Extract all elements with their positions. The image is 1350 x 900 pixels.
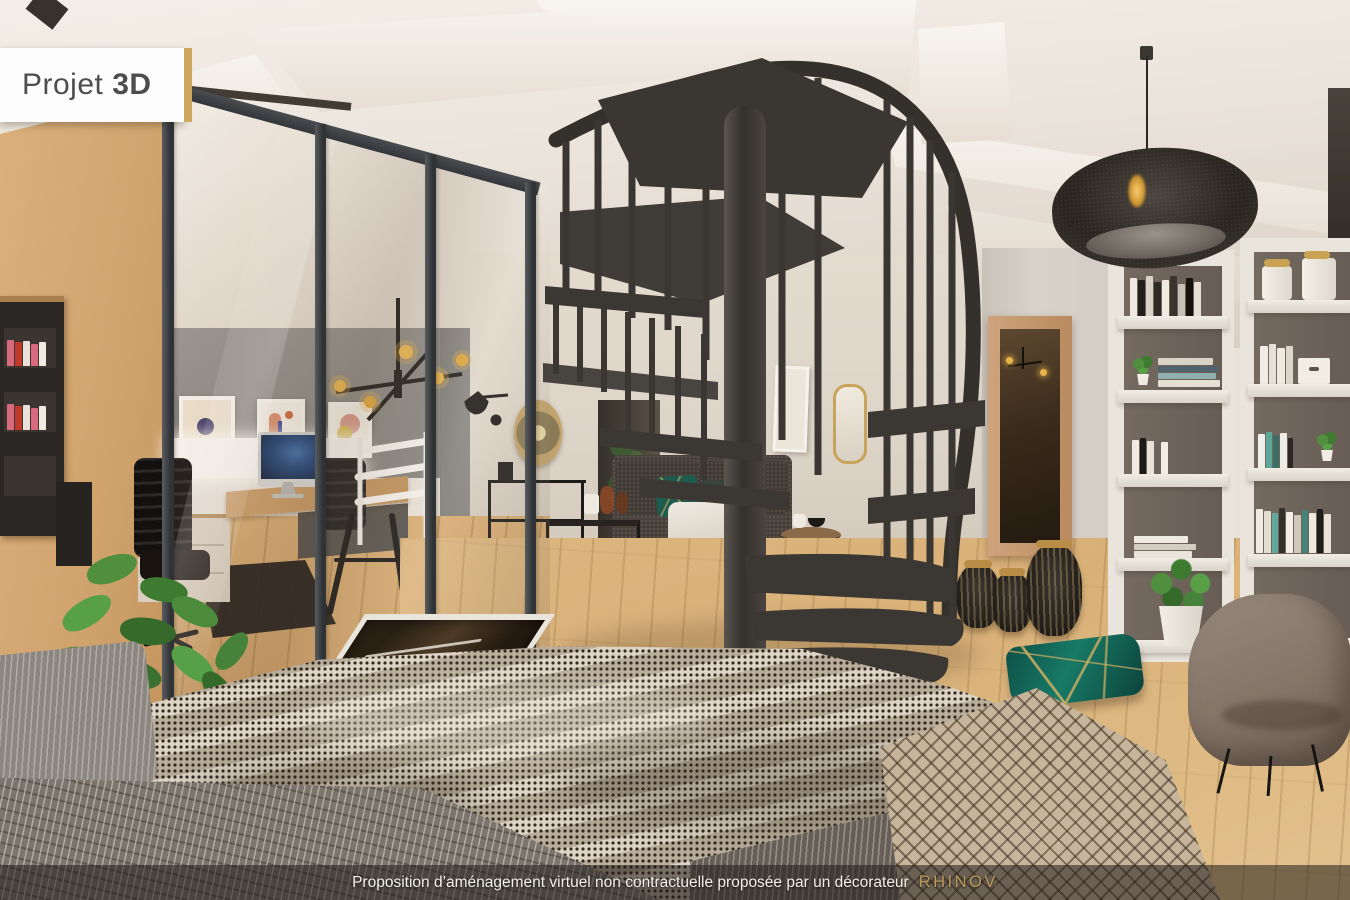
bed-pillow-gray: [0, 640, 159, 798]
projet-3d-badge: Projet 3D: [0, 48, 184, 122]
pendant-cord: [1146, 56, 1148, 154]
interior-render: Projet 3D Proposition d’aménagement virt…: [0, 0, 1350, 900]
disclaimer-text: Proposition d’aménagement virtuel non co…: [352, 874, 909, 892]
badge-gold-edge: [184, 48, 192, 122]
pendant-bulb-glow: [1128, 174, 1146, 208]
disclaimer-bar: Proposition d’aménagement virtuel non co…: [0, 865, 1350, 900]
badge-label: Projet 3D: [22, 68, 152, 102]
rhinov-brand: RHINOV: [919, 873, 998, 892]
